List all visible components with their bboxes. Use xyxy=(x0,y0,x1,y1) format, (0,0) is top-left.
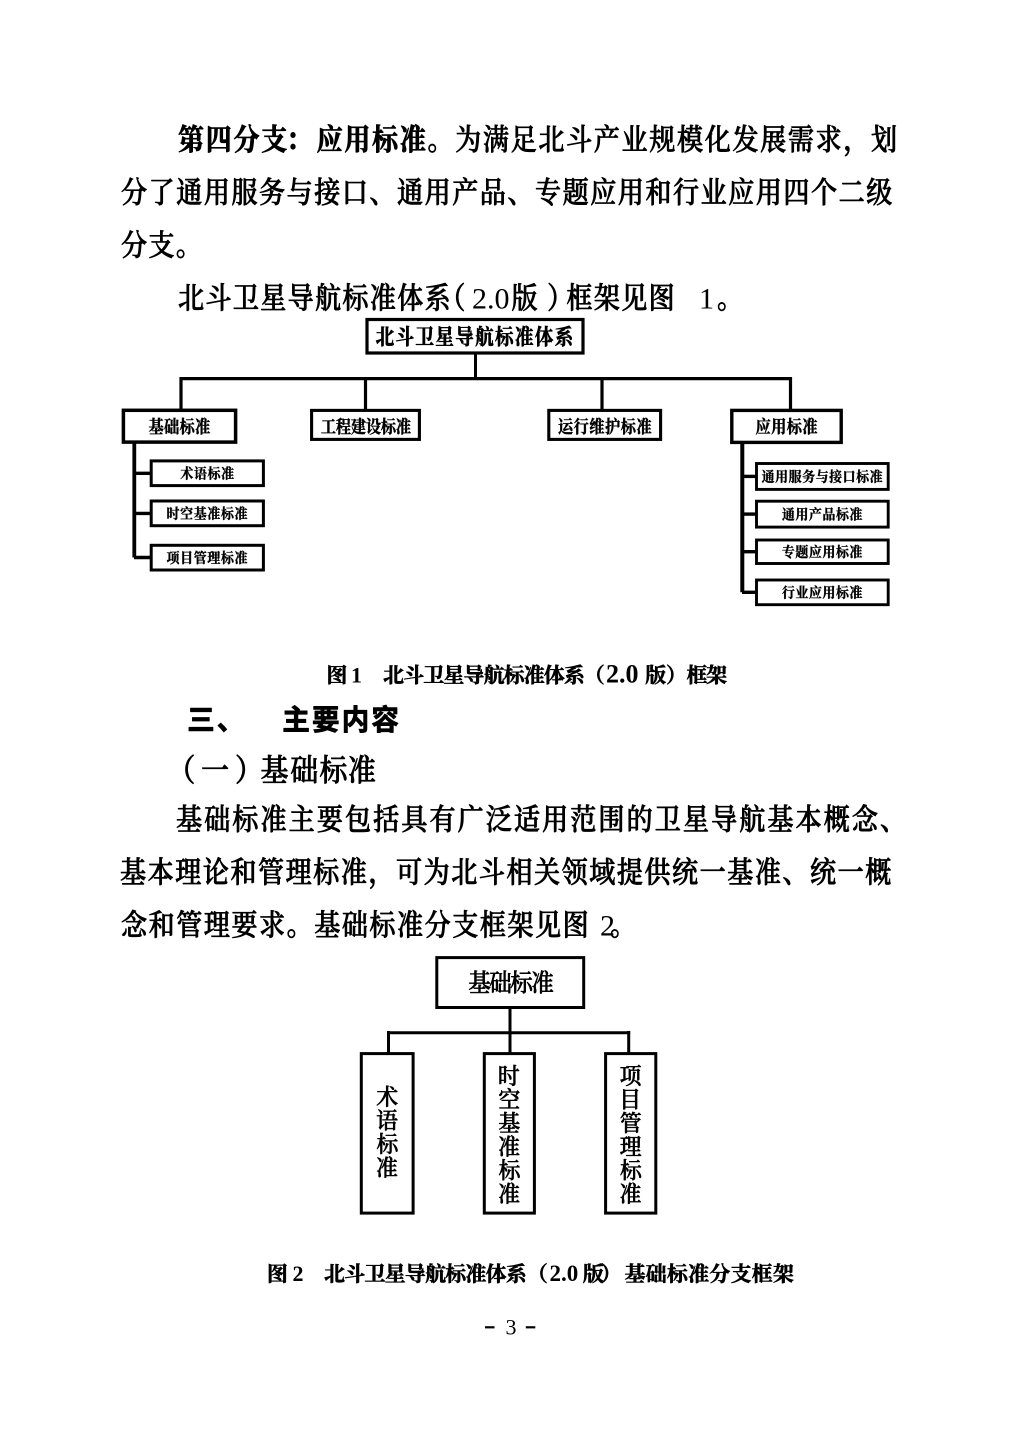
svg-text:2.0: 2.0 xyxy=(472,282,510,315)
svg-text:3: 3 xyxy=(506,1315,517,1340)
svg-text:2: 2 xyxy=(293,1261,304,1286)
svg-text:2.0: 2.0 xyxy=(550,1261,579,1286)
svg-text:1: 1 xyxy=(699,282,714,315)
svg-text:1: 1 xyxy=(351,663,362,688)
svg-text:2.0: 2.0 xyxy=(606,660,639,689)
